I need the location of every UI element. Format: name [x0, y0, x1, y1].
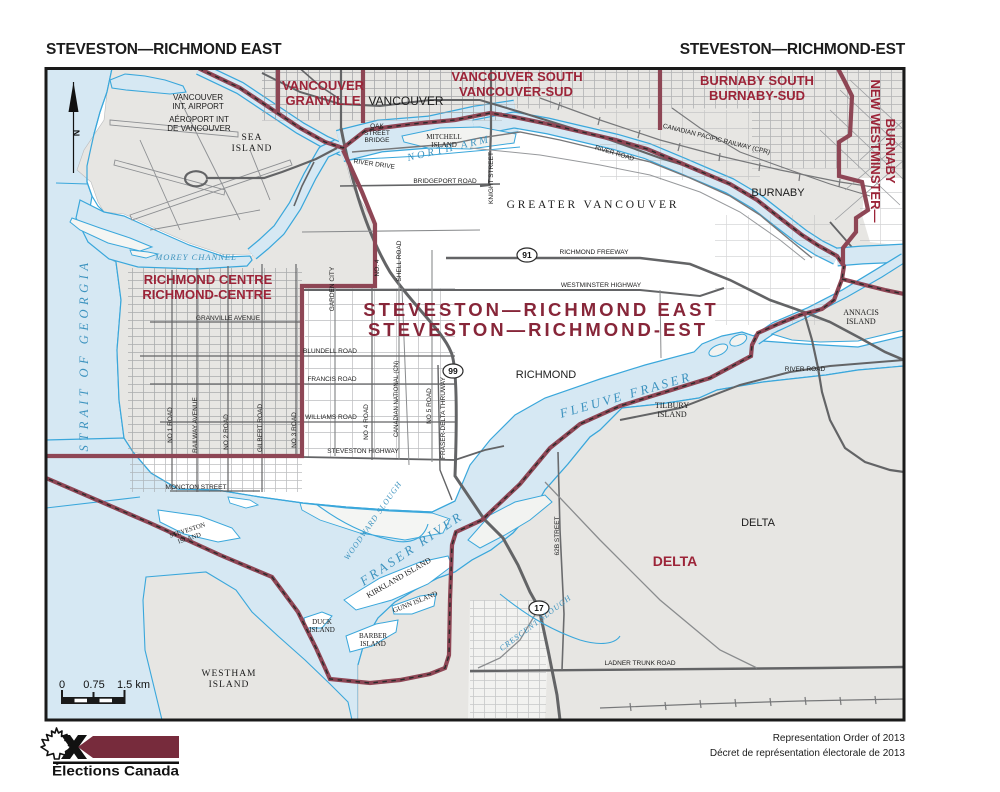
svg-text:GARDEN CITY: GARDEN CITY: [329, 266, 336, 311]
svg-text:Representation Order of 2013: Representation Order of 2013: [773, 733, 906, 744]
svg-text:STEVESTON—RICHMOND-EST: STEVESTON—RICHMOND-EST: [368, 319, 708, 340]
svg-text:RICHMOND FREEWAY: RICHMOND FREEWAY: [560, 249, 630, 256]
svg-text:DUCK: DUCK: [312, 618, 332, 626]
svg-text:SHELL ROAD: SHELL ROAD: [396, 240, 403, 281]
svg-text:ISLAND: ISLAND: [232, 144, 273, 154]
svg-text:MONCTON STREET: MONCTON STREET: [166, 484, 227, 491]
svg-text:WESTMINSTER HIGHWAY: WESTMINSTER HIGHWAY: [561, 282, 642, 289]
svg-text:STEVESTON—RICHMOND EAST: STEVESTON—RICHMOND EAST: [46, 41, 282, 58]
svg-text:GRANVILLE AVENUE: GRANVILLE AVENUE: [196, 315, 261, 322]
svg-text:Décret de représentation élect: Décret de représentation électorale de 2…: [710, 748, 906, 759]
svg-text:ISLAND: ISLAND: [657, 410, 687, 419]
svg-text:GRANVILLE: GRANVILLE: [285, 93, 360, 108]
svg-text:N: N: [71, 130, 81, 137]
svg-text:DE VANCOUVER: DE VANCOUVER: [167, 124, 231, 133]
svg-text:BURNABY: BURNABY: [751, 187, 805, 199]
svg-text:KNIGHT STREET: KNIGHT STREET: [488, 152, 495, 204]
svg-text:VANCOUVER: VANCOUVER: [173, 93, 223, 102]
svg-text:NO 5 ROAD: NO 5 ROAD: [426, 388, 433, 424]
svg-text:OAK: OAK: [370, 123, 384, 130]
svg-text:STEVESTON—RICHMOND-EST: STEVESTON—RICHMOND-EST: [680, 41, 906, 58]
svg-text:ISLAND: ISLAND: [209, 680, 250, 690]
svg-text:SEA: SEA: [242, 133, 263, 143]
svg-text:ISLAND: ISLAND: [431, 141, 457, 149]
svg-text:AÉROPORT INT: AÉROPORT INT: [169, 115, 229, 124]
svg-text:TILBURY: TILBURY: [655, 401, 689, 410]
svg-text:ANNACIS: ANNACIS: [843, 308, 879, 317]
svg-text:BURNABY-SUD: BURNABY-SUD: [709, 88, 805, 103]
svg-text:BLUNDELL ROAD: BLUNDELL ROAD: [303, 348, 357, 355]
svg-text:RICHMOND CENTRE: RICHMOND CENTRE: [144, 272, 273, 287]
svg-text:BARBER: BARBER: [359, 632, 387, 640]
svg-text:BRIDGE: BRIDGE: [365, 137, 391, 144]
svg-text:BURNABY: BURNABY: [883, 119, 898, 184]
svg-text:0: 0: [59, 679, 65, 691]
svg-text:VANCOUVER SOUTH: VANCOUVER SOUTH: [451, 69, 582, 84]
svg-text:WESTHAM: WESTHAM: [201, 669, 256, 679]
svg-text:VANCOUVER-SUD: VANCOUVER-SUD: [459, 84, 573, 99]
svg-text:MOREY CHANNEL: MOREY CHANNEL: [154, 252, 237, 262]
svg-text:ISLAND: ISLAND: [309, 626, 335, 634]
svg-text:99: 99: [448, 366, 458, 376]
svg-text:RICHMOND: RICHMOND: [516, 369, 577, 381]
svg-text:RIVER ROAD: RIVER ROAD: [785, 366, 826, 373]
svg-text:Élections Canada: Élections Canada: [52, 764, 180, 779]
svg-text:GILBERT ROAD: GILBERT ROAD: [257, 404, 264, 452]
svg-text:NO 4 ROAD: NO 4 ROAD: [363, 404, 370, 440]
svg-text:FRASER-DELTA THRUWAY: FRASER-DELTA THRUWAY: [440, 376, 447, 459]
svg-text:VANCOUVER: VANCOUVER: [282, 78, 365, 93]
svg-text:MITCHELL: MITCHELL: [426, 133, 461, 141]
svg-text:FRANCIS ROAD: FRANCIS ROAD: [307, 376, 356, 383]
svg-text:RICHMOND-CENTRE: RICHMOND-CENTRE: [142, 287, 272, 302]
svg-text:STREET: STREET: [364, 130, 390, 137]
svg-text:STEVESTON—RICHMOND EAST: STEVESTON—RICHMOND EAST: [363, 299, 718, 320]
svg-text:BURNABY SOUTH: BURNABY SOUTH: [700, 73, 814, 88]
svg-text:91: 91: [522, 250, 532, 260]
svg-text:RAILWAY AVENUE: RAILWAY AVENUE: [192, 397, 199, 453]
svg-text:NO. 4: NO. 4: [374, 259, 381, 276]
svg-text:0.75: 0.75: [83, 679, 104, 691]
svg-text:NO 3 ROAD: NO 3 ROAD: [291, 412, 298, 448]
svg-text:VANCOUVER: VANCOUVER: [368, 94, 443, 108]
svg-text:GREATER VANCOUVER: GREATER VANCOUVER: [507, 199, 680, 211]
svg-text:LADNER TRUNK ROAD: LADNER TRUNK ROAD: [604, 660, 675, 667]
svg-text:62B STREET: 62B STREET: [554, 516, 561, 555]
svg-text:WILLIAMS ROAD: WILLIAMS ROAD: [305, 414, 357, 421]
svg-text:1.5 km: 1.5 km: [117, 679, 150, 691]
svg-text:BRIDGEPORT ROAD: BRIDGEPORT ROAD: [413, 178, 477, 185]
svg-text:INT. AIRPORT: INT. AIRPORT: [172, 102, 224, 111]
svg-text:STEVESTON HIGHWAY: STEVESTON HIGHWAY: [327, 448, 399, 455]
svg-text:NEW WESTMINSTER—: NEW WESTMINSTER—: [868, 80, 883, 223]
svg-text:DELTA: DELTA: [741, 517, 775, 529]
svg-text:DELTA: DELTA: [653, 553, 698, 569]
svg-text:NO 1 ROAD: NO 1 ROAD: [167, 407, 174, 443]
svg-text:CANADIAN NATIONAL (CN): CANADIAN NATIONAL (CN): [394, 361, 400, 437]
svg-text:ISLAND: ISLAND: [360, 640, 386, 648]
svg-text:NO 2 ROAD: NO 2 ROAD: [223, 414, 230, 450]
svg-text:ISLAND: ISLAND: [846, 317, 876, 326]
svg-text:STRAIT OF GEORGIA: STRAIT OF GEORGIA: [77, 259, 91, 452]
